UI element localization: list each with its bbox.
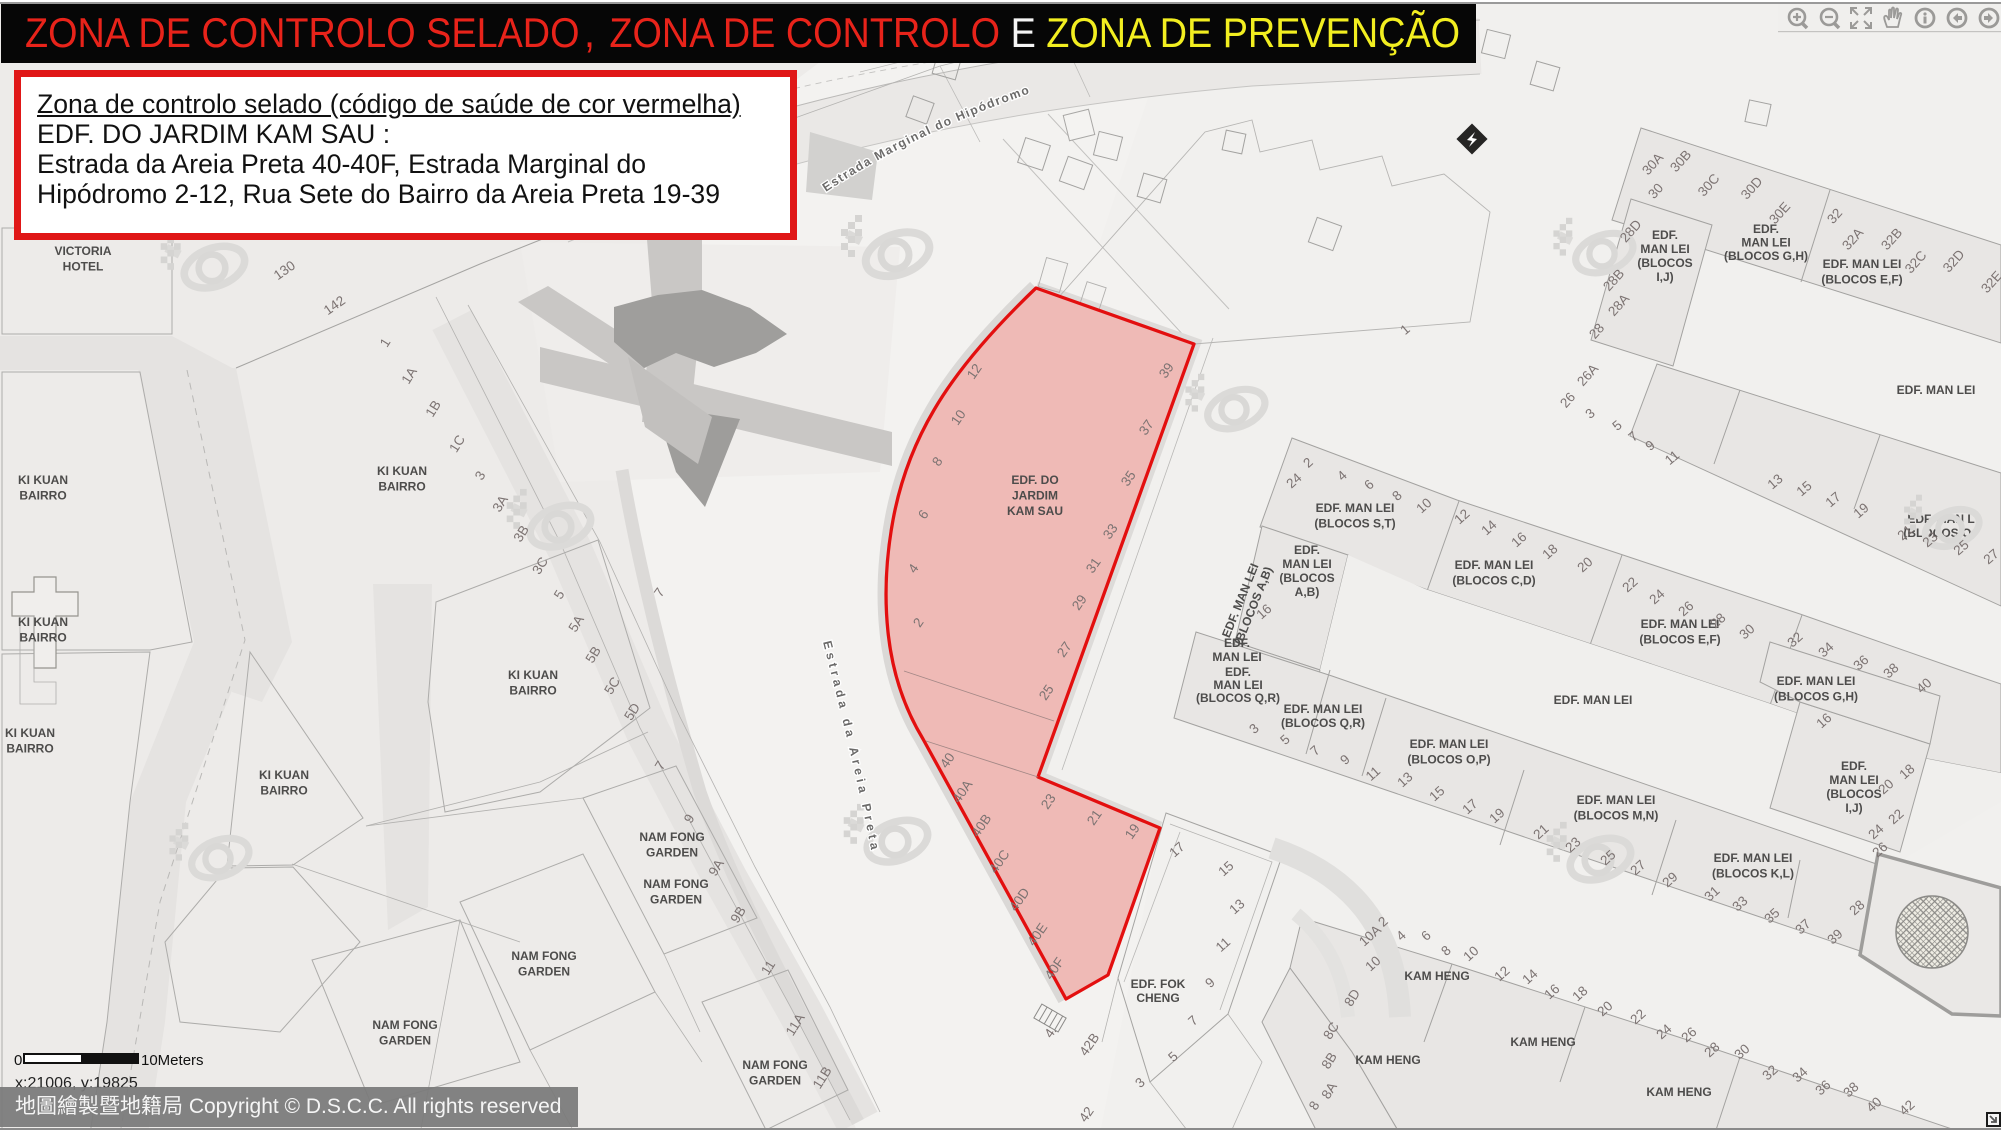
svg-text:KI KUANBAIRRO: KI KUANBAIRRO: [18, 473, 68, 503]
svg-text:EDF. MAN LEI(BLOCOS S,T): EDF. MAN LEI(BLOCOS S,T): [1314, 501, 1395, 531]
svg-text:EDF. MAN LEI(BLOCOS M,N): EDF. MAN LEI(BLOCOS M,N): [1574, 793, 1659, 823]
svg-text:10Meters: 10Meters: [141, 1052, 204, 1069]
svg-text:EDF. MAN LEI(BLOCOS C,D): EDF. MAN LEI(BLOCOS C,D): [1452, 558, 1535, 588]
svg-text:EDF. MAN LEI: EDF. MAN LEI: [1897, 383, 1976, 397]
svg-text:KI KUANBAIRRO: KI KUANBAIRRO: [377, 464, 427, 494]
svg-text:KAM HENG: KAM HENG: [1404, 969, 1469, 983]
svg-text:NAM FONGGARDEN: NAM FONGGARDEN: [511, 949, 576, 979]
svg-text:EDF. DOJARDIMKAM SAU: EDF. DOJARDIMKAM SAU: [1007, 473, 1063, 518]
svg-text:VICTORIAHOTEL: VICTORIAHOTEL: [54, 244, 111, 274]
svg-text:EDF. FOKCHENG: EDF. FOKCHENG: [1131, 977, 1186, 1005]
svg-text:KI KUANBAIRRO: KI KUANBAIRRO: [259, 768, 309, 798]
svg-text:KI KUANBAIRRO: KI KUANBAIRRO: [508, 668, 558, 698]
svg-text:KI KUANBAIRRO: KI KUANBAIRRO: [5, 726, 55, 756]
svg-text:EDF. MAN LEI(BLOCOS K,L): EDF. MAN LEI(BLOCOS K,L): [1712, 851, 1794, 881]
svg-text:NAM FONGGARDEN: NAM FONGGARDEN: [643, 877, 708, 907]
svg-text:KAM HENG: KAM HENG: [1510, 1035, 1575, 1049]
svg-text:KI KUANBAIRRO: KI KUANBAIRRO: [18, 615, 68, 645]
svg-text:EDF. MAN LEI(BLOCOS E,F): EDF. MAN LEI(BLOCOS E,F): [1821, 257, 1902, 287]
svg-text:NAM FONGGARDEN: NAM FONGGARDEN: [639, 830, 704, 860]
svg-text:EDF. MAN LEI(BLOCOS Q,R): EDF. MAN LEI(BLOCOS Q,R): [1281, 702, 1365, 730]
svg-text:KAM HENG: KAM HENG: [1355, 1053, 1420, 1067]
svg-text:EDF. MAN LEI(BLOCOS O,P): EDF. MAN LEI(BLOCOS O,P): [1407, 737, 1490, 767]
svg-text:NAM FONGGARDEN: NAM FONGGARDEN: [742, 1058, 807, 1088]
svg-text:EDF. MAN LEI(BLOCOS G,H): EDF. MAN LEI(BLOCOS G,H): [1774, 674, 1858, 704]
svg-text:EDF. MAN LEI: EDF. MAN LEI: [1554, 693, 1633, 707]
svg-text:NAM FONGGARDEN: NAM FONGGARDEN: [372, 1018, 437, 1048]
svg-text:KAM HENG: KAM HENG: [1646, 1085, 1711, 1099]
svg-text:0: 0: [14, 1052, 22, 1069]
